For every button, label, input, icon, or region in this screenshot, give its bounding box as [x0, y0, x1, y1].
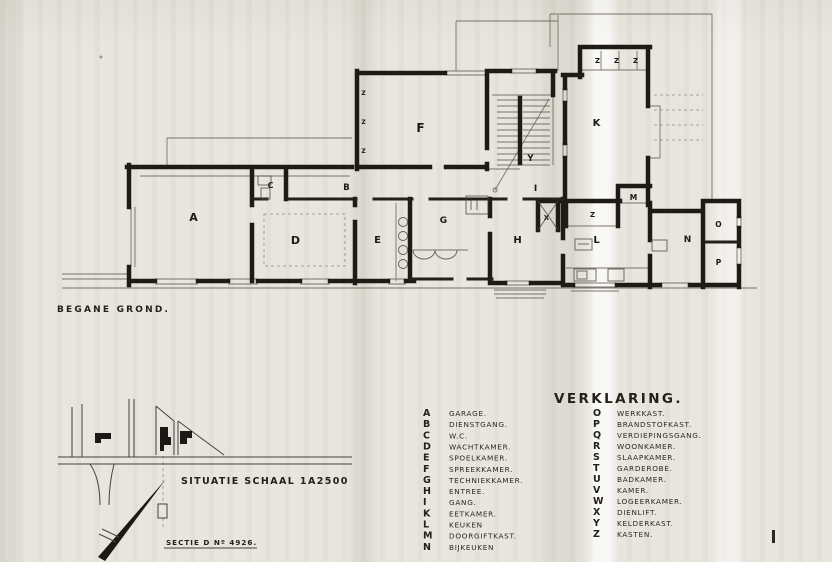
legend-key: Q	[593, 430, 601, 441]
room-label-garage: A	[189, 211, 199, 224]
legend-label: KEUKEN	[449, 521, 483, 530]
legend-key: P	[593, 419, 600, 430]
house-footprint	[160, 427, 171, 451]
room-label-werkkast: O	[715, 220, 722, 229]
legend-label: SPOELKAMER.	[449, 454, 508, 463]
plan-walls	[127, 47, 739, 287]
legend-key: O	[593, 408, 601, 419]
legend-left-column: AGARAGE. BDIENSTGANG. CW.C. DWACHTKAMER.…	[423, 408, 523, 553]
paper-speck	[100, 56, 103, 59]
legend: VERKLARING. AGARAGE. BDIENSTGANG. CW.C. …	[423, 391, 702, 553]
situation-sketch: SITUATIE SCHAAL 1A2500 SECTIE D Nº 4926.	[58, 399, 352, 561]
architectural-drawing: A B C D E F G H I Y K L M N O P X Z Z Z …	[0, 0, 832, 562]
staircase	[493, 98, 550, 192]
plan-dashed-lines	[264, 95, 703, 266]
legend-key: V	[593, 485, 601, 496]
drawing-sheet: A B C D E F G H I Y K L M N O P X Z Z Z …	[0, 0, 832, 562]
legend-label: BIJKEUKEN	[449, 543, 494, 552]
room-label-kast: Z	[361, 119, 366, 126]
room-label-wachtkamer: D	[291, 234, 301, 247]
room-label-techniekkamer: G	[440, 216, 448, 226]
sink-basin	[399, 218, 408, 227]
boiler-marks	[471, 200, 477, 210]
situation-caption: SITUATIE SCHAAL 1A2500	[181, 476, 349, 487]
legend-label: W.C.	[449, 431, 468, 440]
legend-key: B	[423, 419, 430, 430]
room-label-kast: Z	[595, 57, 601, 65]
room-label-keuken: L	[593, 235, 600, 246]
legend-label: VERDIEPINGSGANG.	[617, 431, 702, 440]
sink-basin	[399, 246, 408, 255]
room-label-dienstgang: B	[343, 183, 350, 193]
legend-key: H	[423, 486, 431, 497]
legend-key: C	[423, 430, 430, 441]
registration-tick	[772, 530, 775, 543]
legend-label: WOONKAMER.	[617, 442, 676, 451]
kitchen-sink-basin	[577, 271, 587, 279]
room-label-spreekkamer: F	[416, 121, 425, 135]
counter-scallops	[413, 250, 457, 259]
legend-title: VERKLARING.	[554, 391, 683, 407]
scullery-fixture	[652, 240, 667, 251]
legend-label: GARDEROBE.	[617, 464, 673, 473]
kitchen-table	[575, 239, 592, 250]
legend-key: E	[423, 453, 430, 464]
room-label-spoelkamer: E	[374, 235, 382, 246]
legend-key: I	[423, 497, 427, 508]
legend-key: Y	[592, 518, 600, 529]
legend-label: LOGEERKAMER.	[617, 497, 683, 506]
legend-key: M	[423, 531, 432, 542]
sink-basin	[399, 260, 408, 269]
legend-key: N	[423, 542, 431, 553]
room-label-bijkeuken: N	[684, 235, 693, 245]
road-lines	[58, 457, 352, 464]
parcel-boundaries	[72, 399, 224, 457]
legend-label: TECHNIEKKAMER.	[448, 476, 523, 485]
room-label-entree: H	[513, 235, 522, 246]
room-label-gang: I	[534, 184, 538, 194]
legend-label: GARAGE.	[449, 409, 487, 418]
neighbour-building-footprint	[95, 433, 111, 443]
legend-label: WERKKAST.	[617, 409, 665, 418]
room-label-kast: Z	[633, 57, 639, 65]
legend-key: X	[593, 507, 601, 518]
floor-plan: A B C D E F G H I Y K L M N O P X Z Z Z …	[57, 14, 757, 315]
plan-fixtures	[258, 176, 667, 281]
room-label-kast: Z	[361, 90, 366, 97]
legend-label: KASTEN.	[617, 530, 653, 539]
legend-label: WACHTKAMER.	[449, 443, 511, 452]
stair-treads	[497, 100, 550, 160]
room-label-eetkamer: K	[593, 118, 602, 129]
legend-key: Z	[593, 529, 600, 540]
legend-label: EETKAMER.	[449, 509, 497, 518]
legend-label: BRANDSTOFKAST.	[617, 420, 692, 429]
sketch-annex-outline	[158, 504, 167, 518]
legend-label: SPREEKKAMER.	[449, 465, 513, 474]
legend-key: A	[423, 408, 431, 419]
plan-caption: BEGANE GROND.	[57, 305, 170, 315]
room-labels: A B C D E F G H I Y K L M N O P X Z Z Z …	[189, 57, 722, 267]
legend-key: T	[593, 463, 600, 474]
legend-label: GANG.	[449, 498, 477, 507]
legend-key: F	[423, 464, 430, 475]
legend-key: W	[593, 496, 604, 507]
room-label-kast: Z	[361, 148, 366, 155]
legend-label: BADKAMER.	[617, 475, 667, 484]
legend-right-column: OWERKKAST. PBRANDSTOFKAST. QVERDIEPINGSG…	[592, 408, 702, 540]
legend-label: KELDERKAST.	[617, 519, 674, 528]
room-label-dienlift: X	[544, 214, 550, 222]
legend-key: D	[423, 442, 431, 453]
road-junction-curves	[90, 464, 114, 505]
legend-key: R	[593, 441, 601, 452]
legend-key: U	[593, 474, 601, 485]
neighbour-building-footprint	[180, 431, 192, 444]
legend-key: K	[423, 508, 431, 519]
sink-basin	[399, 232, 408, 241]
room-label-kast: Z	[614, 57, 620, 65]
legend-label: DIENSTGANG.	[449, 420, 508, 429]
legend-label: DIENLIFT.	[617, 508, 657, 517]
legend-label: KAMER.	[617, 486, 649, 495]
legend-key: S	[593, 452, 600, 463]
section-reference: SECTIE D Nº 4926.	[166, 538, 257, 547]
room-label-brandstofkast: P	[716, 258, 723, 267]
room-label-kast: Z	[590, 211, 596, 219]
legend-key: L	[423, 520, 429, 531]
room-label-kelderkast: Y	[526, 154, 534, 164]
kitchen-stove	[608, 269, 624, 281]
room-label-wc: C	[268, 181, 275, 190]
legend-key: G	[423, 475, 431, 486]
legend-label: ENTREE.	[449, 487, 485, 496]
legend-label: SLAAPKAMER.	[617, 453, 676, 462]
legend-label: DOORGIFTKAST.	[449, 532, 517, 541]
north-arrow	[98, 479, 166, 561]
room-label-doorgiftkast: M	[630, 193, 638, 202]
